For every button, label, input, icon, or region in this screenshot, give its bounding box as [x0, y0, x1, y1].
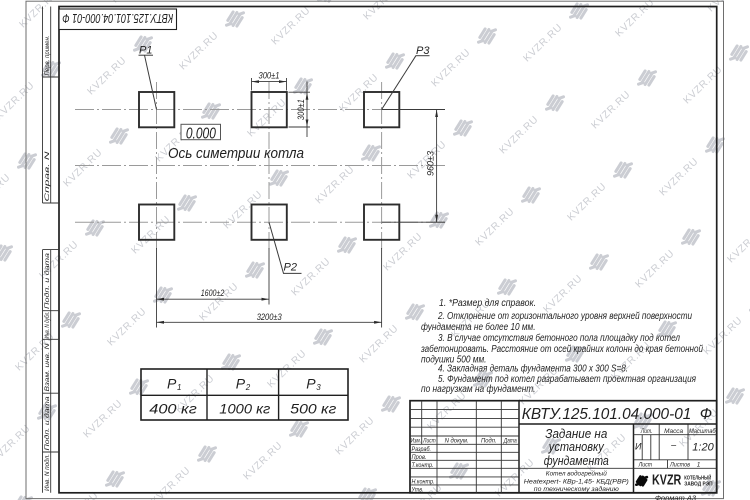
- svg-text:Дата: Дата: [503, 437, 517, 444]
- svg-text:3200±3: 3200±3: [257, 312, 282, 322]
- svg-text:КОТЕЛЬНЫЙ: КОТЕЛЬНЫЙ: [684, 473, 711, 481]
- svg-text:Пров.: Пров.: [412, 454, 427, 461]
- svg-text:фундамента: фундамента: [544, 454, 609, 468]
- svg-text:Лист: Лист: [422, 437, 435, 444]
- svg-text:Котел водогрейный: Котел водогрейный: [546, 470, 607, 478]
- svg-text:Heatexpert- КВр-1,45- КБД(РВР): Heatexpert- КВр-1,45- КБД(РВР): [524, 478, 629, 485]
- svg-text:P2: P2: [284, 262, 297, 274]
- svg-text:300±1: 300±1: [296, 99, 306, 120]
- svg-text:P: P: [236, 375, 246, 391]
- svg-text:P3: P3: [416, 45, 430, 57]
- svg-text:Изм.: Изм.: [411, 437, 422, 444]
- svg-text:Подп. и дата: Подп. и дата: [43, 396, 51, 451]
- svg-text:P: P: [306, 375, 316, 391]
- svg-text:Взам. инв. N: Взам. инв. N: [44, 343, 51, 392]
- svg-text:Подп. и дата: Подп. и дата: [43, 252, 51, 309]
- svg-text:2. Отклонение от горизонтально: 2. Отклонение от горизонтального уровня …: [437, 311, 692, 322]
- svg-text:–: –: [670, 440, 677, 450]
- svg-text:Перв. примен.: Перв. примен.: [44, 36, 51, 76]
- svg-text:2: 2: [245, 383, 251, 392]
- svg-text:по техническому заданию: по техническому заданию: [534, 485, 619, 493]
- svg-text:3. В случае отсутствия бетонно: 3. В случае отсутствия бетонного пола пл…: [438, 333, 680, 344]
- svg-text:Формат А3: Формат А3: [655, 493, 697, 500]
- svg-text:Масштаб: Масштаб: [689, 427, 716, 435]
- svg-text:960±3: 960±3: [426, 151, 436, 176]
- svg-text:Ф: Ф: [700, 406, 712, 423]
- svg-text:Т.контр.: Т.контр.: [412, 462, 434, 469]
- svg-text:4. Закладная деталь фундамента: 4. Закладная деталь фундамента 300 x 300…: [438, 363, 628, 374]
- svg-text:фундамента не более 10 мм.: фундамента не более 10 мм.: [421, 322, 536, 333]
- svg-text:Масса: Масса: [664, 428, 683, 435]
- svg-text:КВТУ.125.101.04.000-01 Ф: КВТУ.125.101.04.000-01 Ф: [62, 11, 173, 25]
- svg-text:КВТУ.125.101.04.000-01: КВТУ.125.101.04.000-01: [522, 406, 692, 423]
- svg-text:400 кг: 400 кг: [149, 401, 197, 417]
- svg-text:3: 3: [316, 383, 321, 392]
- svg-text:Лит.: Лит.: [640, 428, 653, 435]
- svg-text:500 кг: 500 кг: [290, 401, 336, 417]
- svg-text:1000 кг: 1000 кг: [219, 401, 270, 417]
- svg-text:Ось симетрии котла: Ось симетрии котла: [168, 146, 304, 162]
- svg-text:Н.контр.: Н.контр.: [412, 479, 435, 486]
- svg-text:N докум.: N докум.: [445, 436, 469, 444]
- svg-text:Инв. N подл.: Инв. N подл.: [43, 454, 51, 491]
- svg-text:по нагрузкам на фундамент.: по нагрузкам на фундамент.: [421, 384, 536, 395]
- svg-text:Инв. N дубл.: Инв. N дубл.: [43, 312, 51, 339]
- svg-text:ЗАВОД РЭП: ЗАВОД РЭП: [684, 482, 713, 488]
- svg-text:Листов: Листов: [669, 462, 690, 469]
- svg-text:Лист: Лист: [638, 462, 653, 469]
- svg-text:1: 1: [697, 462, 701, 469]
- svg-text:1600±2: 1600±2: [201, 288, 225, 298]
- svg-text:Подп.: Подп.: [481, 436, 497, 444]
- svg-text:1. *Размер для справок.: 1. *Размер для справок.: [439, 298, 536, 309]
- svg-text:0.000: 0.000: [186, 125, 216, 142]
- svg-text:установку: установку: [548, 440, 605, 454]
- svg-text:Разраб.: Разраб.: [412, 445, 432, 453]
- svg-text:И: И: [635, 441, 642, 451]
- svg-text:1: 1: [177, 383, 181, 392]
- svg-text:Утв.: Утв.: [411, 486, 424, 493]
- svg-text:P: P: [167, 375, 177, 391]
- svg-text:Справ. N: Справ. N: [44, 151, 51, 202]
- svg-text:1:20: 1:20: [692, 442, 714, 454]
- svg-text:KVZR: KVZR: [652, 472, 682, 488]
- svg-text:300±1: 300±1: [259, 71, 280, 81]
